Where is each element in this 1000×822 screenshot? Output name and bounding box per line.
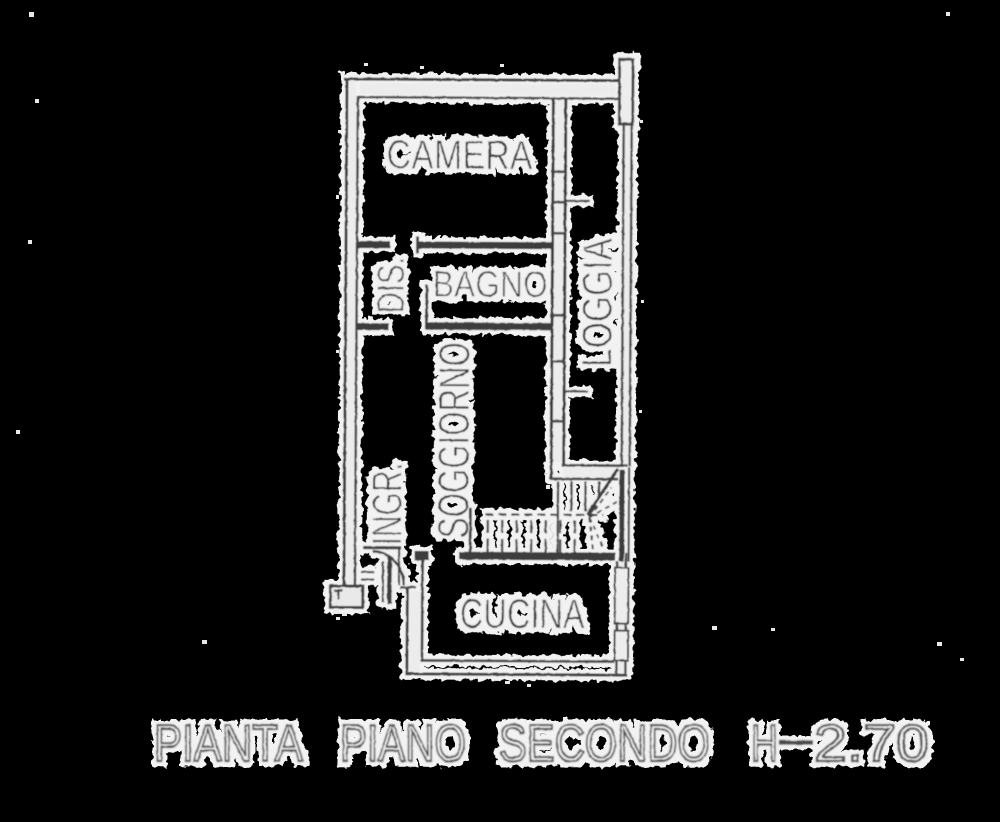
svg-text:LOGGIA: LOGGIA (573, 238, 621, 367)
svg-text:SOGGIORNO: SOGGIORNO (429, 342, 479, 538)
svg-text:BAGNO: BAGNO (433, 264, 548, 306)
svg-text:INGR.: INGR. (363, 462, 411, 545)
svg-text:CUCINA: CUCINA (460, 590, 585, 638)
svg-text:DIS.: DIS. (371, 256, 413, 313)
svg-text:PIANTA: PIANTA (154, 715, 303, 773)
svg-text:2.70: 2.70 (814, 715, 929, 773)
svg-text:PIANO: PIANO (340, 715, 466, 773)
svg-text:H: H (751, 715, 778, 773)
svg-text:SECONDO: SECONDO (499, 715, 710, 773)
svg-text:CAMERA: CAMERA (386, 131, 533, 178)
